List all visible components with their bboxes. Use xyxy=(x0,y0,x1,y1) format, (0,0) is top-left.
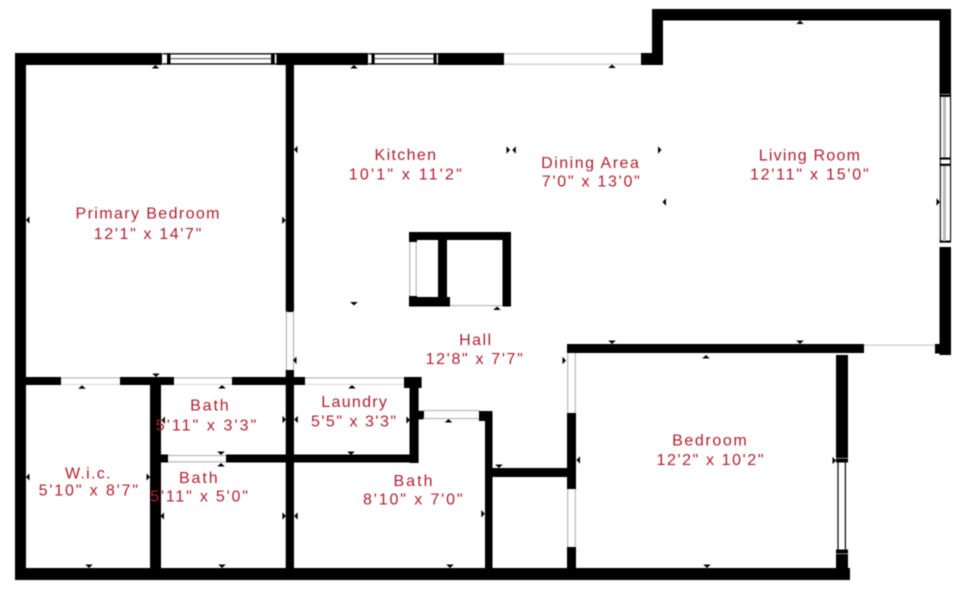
svg-text:Bath: Bath xyxy=(179,470,218,487)
svg-text:7'0" x 13'0": 7'0" x 13'0" xyxy=(542,173,640,190)
svg-text:5'11" x 5'0": 5'11" x 5'0" xyxy=(150,489,248,506)
svg-text:5'5" x 3'3": 5'5" x 3'3" xyxy=(311,413,396,430)
svg-text:10'1" x 11'2": 10'1" x 11'2" xyxy=(349,167,462,184)
svg-text:Bath: Bath xyxy=(190,397,229,414)
svg-text:Living Room: Living Room xyxy=(759,147,860,164)
svg-text:12'2" x 10'2": 12'2" x 10'2" xyxy=(657,452,764,469)
svg-text:Laundry: Laundry xyxy=(321,394,387,411)
svg-text:Dining Area: Dining Area xyxy=(541,155,639,172)
svg-text:W.i.c.: W.i.c. xyxy=(65,465,111,482)
svg-text:12'1" x 14'7": 12'1" x 14'7" xyxy=(94,226,202,243)
svg-text:Bath: Bath xyxy=(393,473,432,490)
svg-text:Primary Bedroom: Primary Bedroom xyxy=(76,205,220,222)
